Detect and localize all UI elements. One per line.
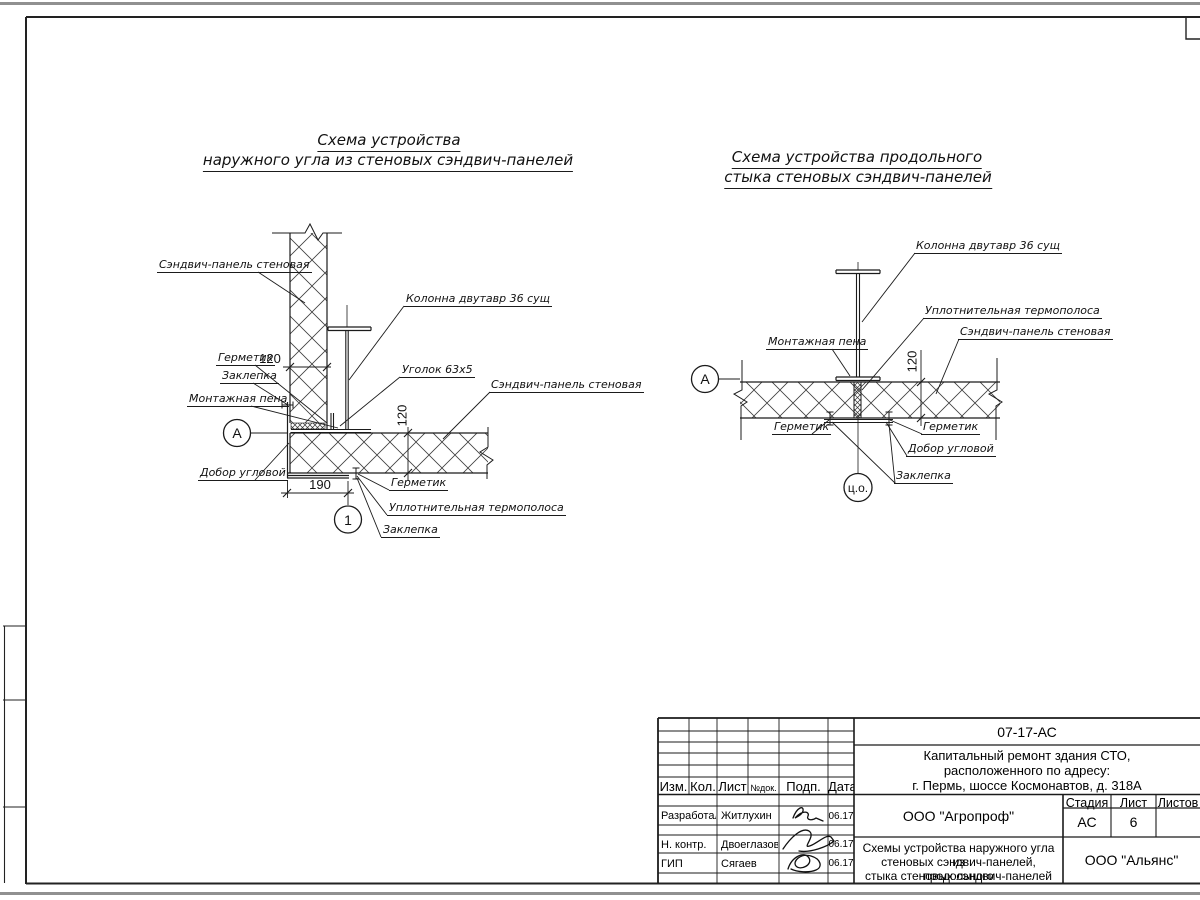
col-header-list: Лист (717, 779, 748, 794)
label-rivet-right: Заклепка (894, 470, 953, 484)
detail-marker-1: 1 (334, 512, 362, 528)
label-corner-trim: Добор угловой (198, 467, 288, 481)
staff-role-ncontrol: Н. контр. (661, 839, 716, 851)
right-detail-linework (692, 253, 1003, 502)
signature-zhitlukhin (793, 808, 823, 821)
right-detail-title-line1: Схема устройства продольного (732, 148, 982, 169)
sheet-title-line3: стыка стеновых сэндвич-панелей (856, 869, 1061, 883)
staff-date-gip: 06.17 (828, 858, 854, 869)
stage-label: Стадия (1063, 796, 1111, 810)
staff-role-developer: Разработал (661, 810, 716, 822)
label-mounting-foam: Монтажная пена (187, 393, 289, 407)
label-corner-trim-right: Добор угловой (906, 443, 996, 457)
col-header-kol: Кол. (689, 779, 717, 794)
label-sealant-right: Герметик (921, 421, 980, 435)
doc-number: 07-17-АС (854, 724, 1200, 740)
staff-role-gip: ГИП (661, 858, 716, 870)
center-axis-marker: ц.о. (844, 481, 872, 495)
label-thermal-strip: Уплотнительная термополоса (387, 502, 566, 516)
label-mounting-foam-right: Монтажная пена (766, 336, 868, 350)
signature-dvoeglazov (783, 830, 834, 851)
label-thermal-strip-right: Уплотнительная термополоса (923, 305, 1102, 319)
sheet-top-edge (0, 2, 1200, 5)
right-detail-title-line2: стыка стеновых сэндвич-панелей (724, 168, 992, 189)
stage-value: АС (1063, 814, 1111, 830)
staff-name-gip: Сягаев (721, 858, 778, 870)
drawing-sheet: Схема устройства наружного угла из стено… (0, 0, 1200, 900)
dim-120-right: 120 (905, 344, 920, 380)
signatures (783, 808, 834, 872)
col-header-podp: Подп. (779, 779, 828, 794)
staff-date-developer: 06.17 (828, 811, 854, 822)
staff-name-ncontrol: Двоеглазов (721, 839, 778, 851)
project-name-line2: расположенного по адресу: (854, 763, 1200, 778)
col-header-izm: Изм. (658, 779, 689, 794)
dim-190-corner: 190 (300, 477, 340, 492)
left-margin-strip (3, 626, 26, 883)
sheet-bottom-edge (0, 892, 1200, 895)
dim-120-panel-thickness: 120 (395, 398, 410, 434)
left-detail-title-line2: наружного угла из стеновых сэндвич-панел… (203, 151, 573, 172)
label-wall-panel-right-detail: Сэндвич-панель стеновая (958, 326, 1113, 340)
frame-corner-box (1186, 18, 1200, 39)
label-sealant-bottom: Герметик (389, 477, 448, 491)
sheet-label: Лист (1111, 796, 1156, 810)
label-wall-panel: Сэндвич-панель стеновая (157, 259, 312, 273)
project-name-line1: Капитальный ремонт здания СТО, (854, 748, 1200, 763)
dim-120-panel-width: 120 (256, 351, 284, 366)
label-rivet-bottom: Заклепка (381, 524, 440, 538)
signature-syagaev (788, 855, 820, 872)
left-detail-title-line1: Схема устройства (317, 131, 460, 152)
axis-marker-a-right: А (691, 371, 719, 387)
col-header-ndok: №док. (748, 783, 779, 793)
label-sealant-left: Герметик (772, 421, 831, 435)
staff-date-ncontrol: 06.17 (828, 839, 854, 850)
col-header-data: Дата (828, 779, 854, 794)
label-angle: Уголок 63х5 (400, 364, 475, 378)
designer-org: ООО "Агропроф" (854, 808, 1063, 824)
staff-name-developer: Житлухин (721, 810, 778, 822)
label-wall-panel-right: Сэндвич-панель стеновая (489, 379, 644, 393)
sheet-value: 6 (1111, 814, 1156, 830)
contractor-org: ООО "Альянс" (1063, 852, 1200, 868)
label-rivet-top: Заклепка (220, 370, 279, 384)
label-column-beam: Колонна двутавр 36 сущ (404, 293, 552, 307)
axis-marker-a-left: А (223, 425, 251, 441)
label-column-beam-right: Колонна двутавр 36 сущ (914, 240, 1062, 254)
sheets-label: Листов (1156, 796, 1200, 810)
project-name-line3: г. Пермь, шоссе Космонавтов, д. 318А (854, 778, 1200, 793)
